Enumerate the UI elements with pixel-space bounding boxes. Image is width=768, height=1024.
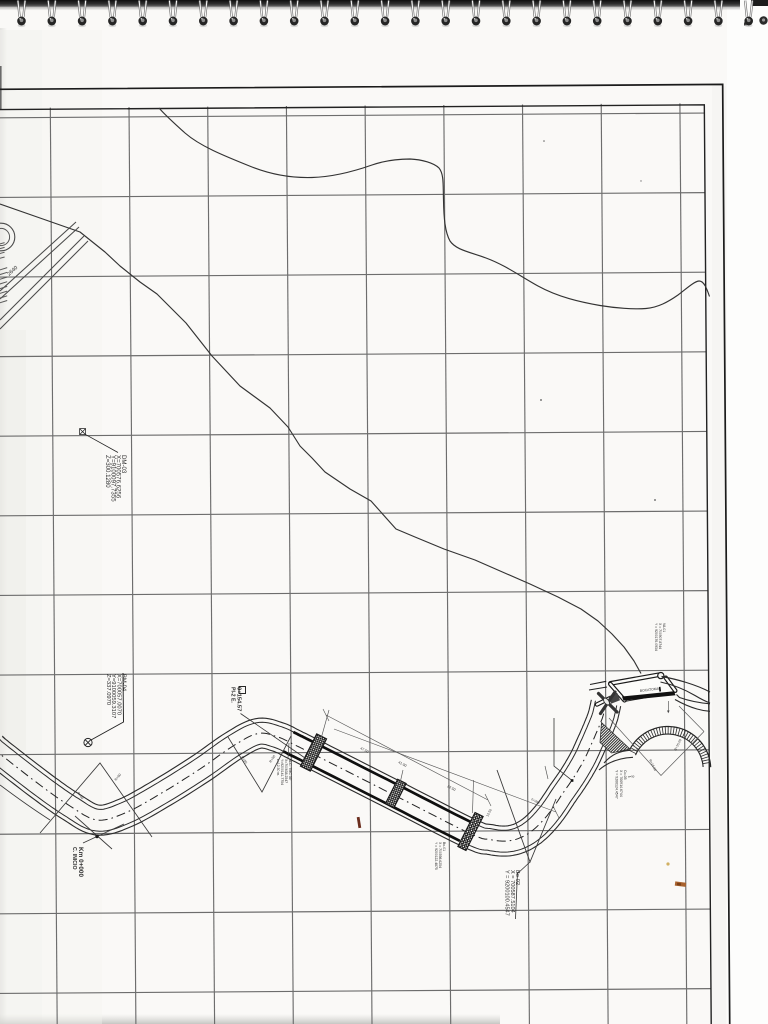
svg-text:a=90: a=90 [628, 775, 635, 779]
